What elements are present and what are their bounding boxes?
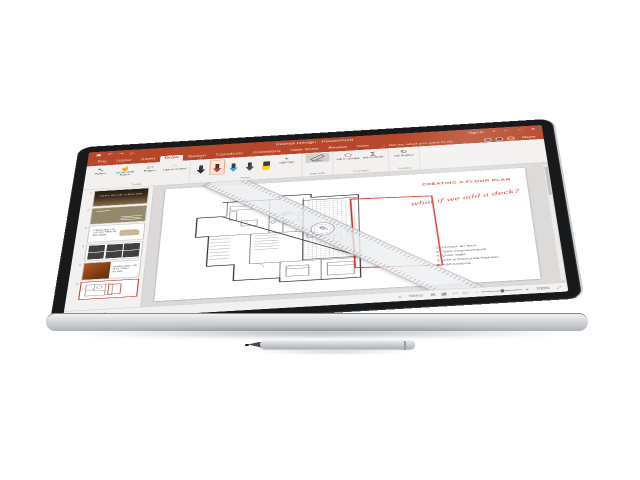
sofa-image xyxy=(119,229,140,236)
thumb-title: ANATOMY OF A FLOOR PLAN xyxy=(112,264,137,273)
tab-file[interactable]: File xyxy=(93,159,112,166)
collaborator-avatar[interactable] xyxy=(507,136,515,140)
select-button[interactable]: ↖ Select xyxy=(88,166,113,176)
protractor-ring xyxy=(310,222,336,236)
notes-icon: ≡ xyxy=(399,295,402,299)
zoom-knob[interactable] xyxy=(501,289,505,292)
ribbon-group-stencils: Ruler Stencils xyxy=(302,152,333,177)
eraser-button[interactable]: ▱ Eraser xyxy=(138,163,163,173)
lightbulb-icon: ☼ xyxy=(381,144,386,147)
ruler-angle-badge: 45° xyxy=(306,220,340,238)
cyan-pen-icon xyxy=(229,168,238,172)
pen-black[interactable] xyxy=(193,160,209,176)
draw-with-touch-label: Draw with Touch xyxy=(113,171,138,177)
notes-button[interactable]: Notes xyxy=(409,294,423,298)
slideshow-icon[interactable]: ▷ xyxy=(463,291,468,295)
vertical-scrollbar[interactable] xyxy=(543,164,565,280)
ink-to-math-button[interactable]: ∑ Ink to Math xyxy=(361,149,385,159)
display-bezel: ▣ ↶ ↷ ▷ Interior Design - PowerPoint Sig… xyxy=(49,119,585,330)
highlighter-icon xyxy=(262,166,271,170)
pen-tip xyxy=(245,344,249,346)
thumb-title: PRINCIPLES OF INTERIOR DESIGN xyxy=(92,228,119,237)
powerpoint-window: ▣ ↶ ↷ ▷ Interior Design - PowerPoint Sig… xyxy=(62,125,568,321)
ink-to-shape-button[interactable]: ⬠ Ink to Shape xyxy=(336,151,360,161)
slide-thumbnail-panel: 1 INTERIOR DESIGN 2 xyxy=(64,186,154,311)
ink-replay-button[interactable]: ↻ Ink Replay xyxy=(391,148,416,158)
slide-number: 3 xyxy=(79,226,87,230)
add-pen-label: Add Pen xyxy=(279,161,295,164)
ink-to-shape-label: Ink to Shape xyxy=(337,157,360,161)
pen-red-selected[interactable] xyxy=(209,160,225,176)
normal-view-icon[interactable]: ⊞ xyxy=(430,293,436,297)
zoom-percentage[interactable]: 100% xyxy=(536,286,550,290)
pen-ring xyxy=(404,341,406,350)
blue-pen-icon xyxy=(245,167,254,171)
draw-with-touch-button[interactable]: ☝ Draw with Touch xyxy=(113,164,138,177)
surface-studio-device: ▣ ↶ ↷ ▷ Interior Design - PowerPoint Sig… xyxy=(0,0,640,480)
pen-cyan[interactable] xyxy=(225,159,241,175)
slide-number: 6 xyxy=(70,282,79,286)
add-pen-button[interactable]: + Add Pen xyxy=(275,155,299,165)
black-pen-icon xyxy=(196,170,205,174)
collaborator-avatar[interactable] xyxy=(484,138,492,142)
thumbnail-slide-5[interactable]: 5 ANATOMY OF A FLOOR PLAN xyxy=(71,259,146,281)
slide-number: 2 xyxy=(82,209,90,213)
device-shadow xyxy=(58,327,580,339)
pen-shadow xyxy=(252,350,414,354)
ribbon-group-convert: ⬠ Ink to Shape ∑ Ink to Math Convert xyxy=(333,148,390,174)
ribbon-group-replay: ↻ Ink Replay Replay xyxy=(389,146,421,171)
pen-body xyxy=(260,340,415,349)
ink-to-math-label: Ink to Math xyxy=(363,156,384,160)
ink-replay-label: Ink Replay xyxy=(394,154,414,158)
share-button[interactable]: Share xyxy=(521,135,536,139)
wood-photo xyxy=(82,262,111,280)
fit-to-window-icon[interactable]: ⤢ xyxy=(557,286,562,290)
slide-number: 1 xyxy=(84,191,92,194)
thumbnail-slide-4[interactable]: 4 xyxy=(74,241,148,262)
zoom-track[interactable] xyxy=(482,289,522,292)
ruler-button[interactable]: Ruler xyxy=(305,153,329,163)
mini-floorplan xyxy=(79,279,138,299)
thumbnail-slide-3[interactable]: 3 PRINCIPLES OF INTERIOR DESIGN xyxy=(77,223,150,244)
surface-pen[interactable] xyxy=(244,339,419,353)
thumb-title: INTERIOR DESIGN xyxy=(94,192,148,198)
pen-blue[interactable] xyxy=(242,158,258,174)
thumb-image xyxy=(90,206,146,224)
slide-number: 5 xyxy=(73,263,82,267)
collaborator-avatar[interactable] xyxy=(496,137,504,141)
zoom-control[interactable]: − + xyxy=(476,288,529,295)
slide-number: 4 xyxy=(76,244,85,248)
scrollbar-thumb[interactable] xyxy=(544,166,552,195)
reading-view-icon[interactable]: ▭ xyxy=(452,291,458,295)
photo-grid xyxy=(87,243,140,260)
steps-list[interactable]: 1. Choose an area 2. Take measurements 3… xyxy=(436,243,500,268)
select-label: Select xyxy=(94,173,106,176)
pen-highlighter[interactable] xyxy=(258,157,274,173)
lasso-select-label: Lasso Select xyxy=(163,168,187,172)
zoom-in-icon[interactable]: + xyxy=(525,288,529,292)
slide-sorter-icon[interactable]: ▦ xyxy=(441,292,447,296)
red-pen-icon xyxy=(213,168,222,172)
eraser-label: Eraser xyxy=(144,170,156,173)
lasso-select-button[interactable]: ◌ Lasso Select xyxy=(163,161,188,171)
zoom-out-icon[interactable]: − xyxy=(476,290,479,294)
thumbnail-slide-6-selected[interactable]: 6 xyxy=(68,278,144,300)
